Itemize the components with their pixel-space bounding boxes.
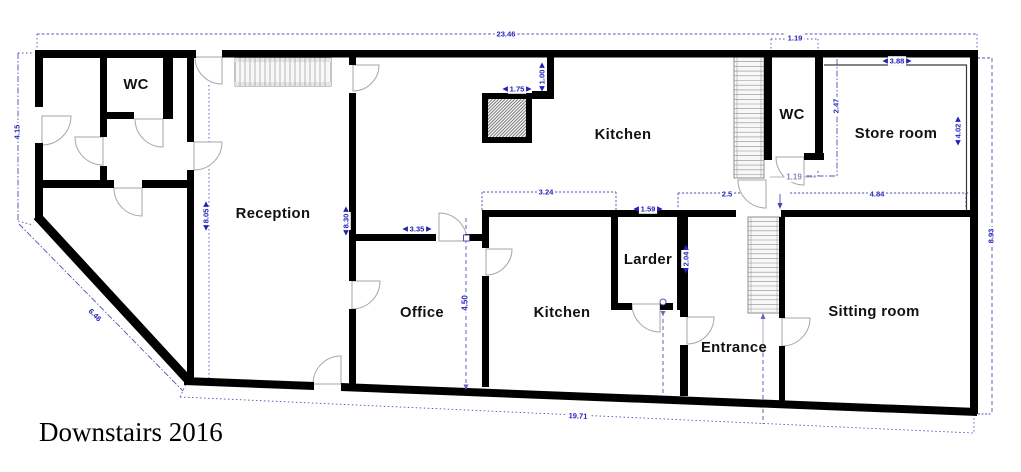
svg-text:2.5: 2.5 (722, 190, 733, 199)
svg-text:1.75: 1.75 (510, 85, 526, 94)
svg-text:8.30: 8.30 (342, 214, 351, 229)
svg-text:3.24: 3.24 (539, 188, 555, 197)
svg-text:Larder: Larder (624, 252, 672, 268)
svg-text:4.02: 4.02 (954, 124, 963, 139)
svg-text:4.84: 4.84 (870, 190, 886, 199)
svg-text:2.47: 2.47 (832, 99, 841, 114)
svg-text:3.88: 3.88 (890, 57, 905, 66)
svg-text:2.04: 2.04 (682, 251, 691, 266)
svg-text:3.35: 3.35 (410, 225, 426, 234)
svg-text:Store room: Store room (855, 126, 937, 142)
svg-text:1.19: 1.19 (788, 34, 803, 43)
svg-text:Office: Office (400, 305, 444, 321)
svg-text:Reception: Reception (236, 206, 311, 222)
svg-text:23.46: 23.46 (496, 30, 515, 39)
svg-text:WC: WC (123, 77, 148, 93)
svg-text:1.19: 1.19 (786, 173, 802, 182)
svg-text:8.05: 8.05 (202, 208, 211, 224)
svg-text:Kitchen: Kitchen (595, 127, 652, 143)
svg-text:4.15: 4.15 (13, 124, 22, 140)
svg-text:19.71: 19.71 (568, 411, 587, 421)
svg-text:8.93: 8.93 (987, 229, 996, 244)
svg-text:4.50: 4.50 (461, 295, 470, 311)
svg-text:Kitchen: Kitchen (534, 305, 591, 321)
svg-text:Downstairs 2016: Downstairs 2016 (39, 417, 223, 447)
svg-text:WC: WC (779, 107, 804, 123)
svg-text:1.59: 1.59 (641, 205, 656, 214)
svg-text:Entrance: Entrance (701, 340, 767, 356)
svg-text:Sitting room: Sitting room (828, 304, 919, 320)
svg-text:1.00: 1.00 (538, 70, 547, 85)
